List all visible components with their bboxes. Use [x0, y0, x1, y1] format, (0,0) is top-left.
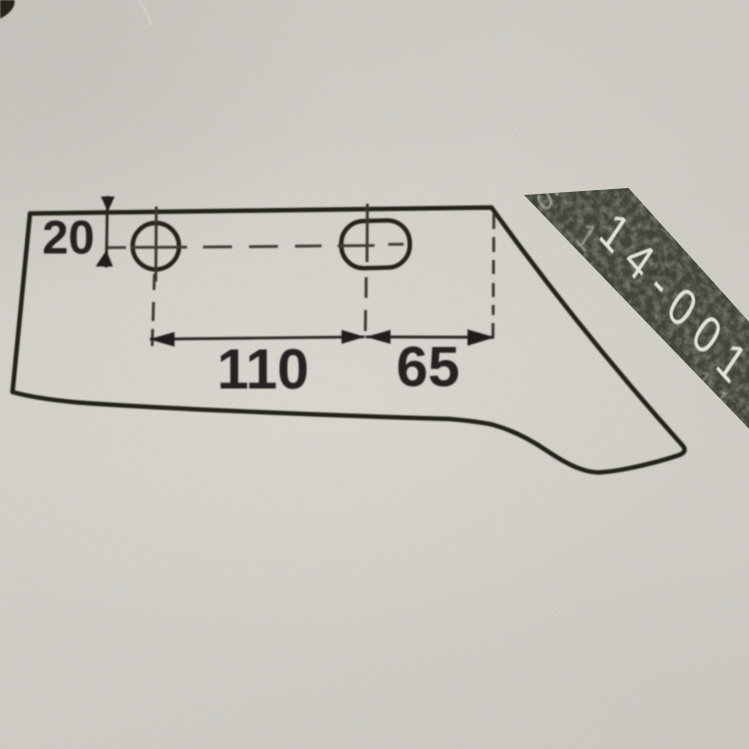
- svg-text:110: 110: [217, 338, 309, 402]
- svg-text:65: 65: [396, 335, 459, 399]
- svg-text:20: 20: [42, 211, 94, 264]
